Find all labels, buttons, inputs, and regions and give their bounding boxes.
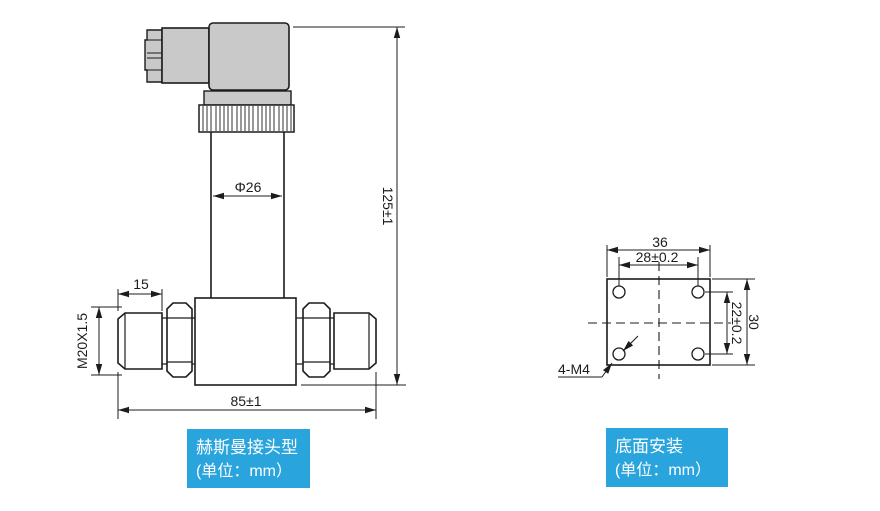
left-caption-box: 赫斯曼接头型 (单位：mm） bbox=[187, 429, 310, 488]
right-thread bbox=[334, 313, 376, 369]
line-art bbox=[0, 0, 880, 511]
transmitter-drawing bbox=[91, 23, 406, 419]
drawing-canvas: Φ26 15 M20X1.5 125±1 85±1 36 28±0.2 22±0… bbox=[0, 0, 880, 511]
left-caption-unit: (单位：mm） bbox=[196, 460, 304, 484]
overall-length-label: 85±1 bbox=[230, 394, 261, 408]
connector-body bbox=[209, 23, 289, 90]
connector-collar bbox=[204, 91, 291, 105]
right-hex-nut bbox=[303, 303, 330, 377]
diameter-label: Φ26 bbox=[235, 180, 262, 194]
left-caption-title: 赫斯曼接头型 bbox=[196, 435, 304, 460]
thread-spec-label: M20X1.5 bbox=[75, 313, 89, 369]
hirschmann-connector bbox=[145, 23, 291, 105]
hole-spacing-h-label: 28±0.2 bbox=[636, 250, 679, 264]
right-caption-box: 底面安装 (单位：mm） bbox=[606, 428, 728, 487]
plate-width-label: 36 bbox=[652, 235, 668, 249]
process-block bbox=[195, 298, 296, 385]
plate-height-label: 30 bbox=[747, 314, 761, 330]
overall-height-label: 125±1 bbox=[381, 187, 395, 226]
dim-thread-length bbox=[118, 289, 162, 311]
knurled-nut bbox=[199, 105, 294, 132]
left-thread bbox=[118, 313, 162, 369]
right-caption-title: 底面安装 bbox=[615, 434, 722, 459]
body-tube bbox=[211, 132, 284, 298]
right-caption-unit: (单位：mm） bbox=[615, 459, 722, 483]
thread-length-label: 15 bbox=[133, 277, 149, 291]
left-hex-nut bbox=[167, 303, 192, 377]
connector-arm bbox=[162, 28, 209, 83]
mounting-holes-label: 4-M4 bbox=[558, 362, 590, 376]
cable-gland bbox=[145, 30, 162, 82]
hole-spacing-v-label: 22±0.2 bbox=[730, 302, 744, 345]
mounting-drawing bbox=[558, 245, 755, 379]
